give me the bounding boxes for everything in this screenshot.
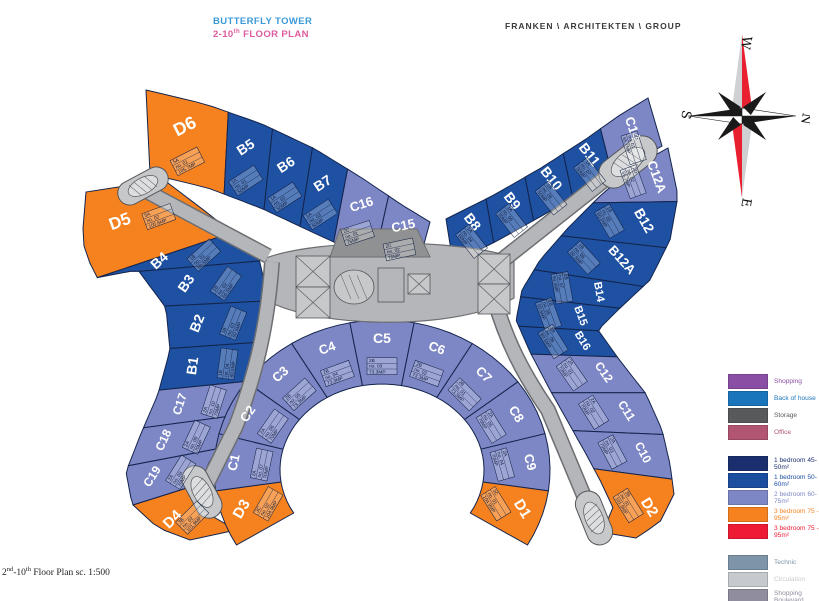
legend-swatch bbox=[728, 456, 768, 471]
compass-label-top: W bbox=[737, 35, 754, 51]
legend-swatch bbox=[728, 572, 768, 587]
legend-item: Shopping Boulevard bbox=[728, 588, 819, 601]
legend-label: Shopping bbox=[774, 378, 802, 385]
legend-item: Storage bbox=[728, 407, 819, 424]
compass-label-bottom: E bbox=[737, 197, 753, 206]
svg-text:no. 03: no. 03 bbox=[369, 364, 383, 370]
legend-label: 1 bedroom 50-60m² bbox=[774, 474, 819, 488]
unit-c5-tag: 2Bno. 0373.3MP bbox=[367, 358, 397, 376]
legend-item: Circulation bbox=[728, 571, 819, 588]
legend-swatch bbox=[728, 473, 768, 488]
legend-panel: ShoppingBack of houseStorageOffice1 bedr… bbox=[728, 373, 819, 601]
legend-item: 2 bedroom 60-75m² bbox=[728, 489, 819, 506]
legend-label: Technic bbox=[774, 559, 796, 566]
legend-label: Storage bbox=[774, 412, 797, 419]
legend-group-residential: 1 bedroom 45-50m²1 bedroom 50-60m²2 bedr… bbox=[728, 455, 819, 540]
legend-item: Technic bbox=[728, 554, 819, 571]
legend-label: Circulation bbox=[774, 576, 805, 583]
legend-swatch bbox=[728, 507, 768, 522]
legend-group-uses: ShoppingBack of houseStorageOffice bbox=[728, 373, 819, 441]
compass-rose: WNES bbox=[678, 30, 810, 206]
legend-item: 3 bedroom 75 - 95m² bbox=[728, 506, 819, 523]
legend-swatch bbox=[728, 425, 768, 440]
legend-item: 3 bedroom 75 - 95m² bbox=[728, 523, 819, 540]
svg-text:1B: 1B bbox=[218, 370, 225, 377]
legend-group-service: TechnicCirculationShopping Boulevard bbox=[728, 554, 819, 601]
unit-b1-name: B1 bbox=[183, 356, 201, 376]
svg-text:73.3MP: 73.3MP bbox=[369, 370, 386, 376]
unit-c12[interactable] bbox=[531, 354, 645, 393]
legend-label: Back of house bbox=[774, 395, 816, 402]
unit-d1[interactable] bbox=[470, 482, 548, 545]
legend-item: Office bbox=[728, 424, 819, 441]
legend-item: 1 bedroom 50-60m² bbox=[728, 472, 819, 489]
unit-c11[interactable] bbox=[552, 393, 664, 435]
svg-text:1B: 1B bbox=[562, 274, 569, 281]
legend-label: 2 bedroom 60-75m² bbox=[774, 491, 819, 505]
legend-swatch bbox=[728, 555, 768, 570]
legend-swatch bbox=[728, 589, 768, 601]
unit-c5-name: C5 bbox=[373, 330, 391, 346]
svg-text:2B: 2B bbox=[369, 358, 375, 364]
legend-swatch bbox=[728, 490, 768, 505]
legend-swatch bbox=[728, 391, 768, 406]
compass-label-left: S bbox=[678, 109, 694, 120]
unit-b2[interactable] bbox=[165, 301, 268, 349]
legend-item: 1 bedroom 45-50m² bbox=[728, 455, 819, 472]
legend-item: Shopping bbox=[728, 373, 819, 390]
legend-label: Shopping Boulevard bbox=[774, 590, 819, 601]
unit-b16[interactable] bbox=[519, 326, 618, 357]
legend-label: 3 bedroom 75 - 95m² bbox=[774, 508, 819, 522]
legend-swatch bbox=[728, 408, 768, 423]
legend-label: 1 bedroom 45-50m² bbox=[774, 457, 819, 471]
scale-note: 2nd-10th Floor Plan sc. 1:500 bbox=[2, 566, 110, 578]
floor-plan-page: BUTTERFLY TOWER 2-10th FLOOR PLAN FRANKE… bbox=[0, 0, 819, 601]
legend-label: 3 bedroom 75 - 95m² bbox=[774, 525, 819, 539]
legend-item: Back of house bbox=[728, 390, 819, 407]
legend-swatch bbox=[728, 374, 768, 389]
legend-swatch bbox=[728, 524, 768, 539]
compass-label-right: N bbox=[797, 112, 810, 126]
legend-label: Office bbox=[774, 429, 791, 436]
